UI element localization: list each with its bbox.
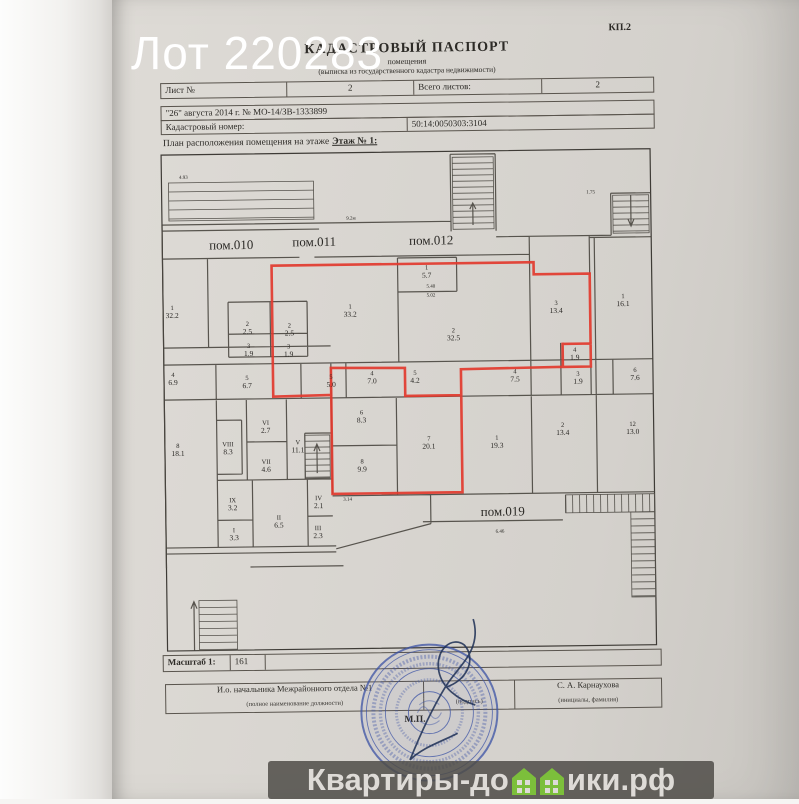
lot-outline-red [272,262,593,495]
house-icon [510,766,566,796]
svg-text:IX: IX [229,497,236,504]
svg-text:VI: VI [262,420,269,427]
svg-text:33.2: 33.2 [344,310,357,319]
scale-row: Масштаб 1: 161 [163,649,662,673]
svg-text:8.3: 8.3 [223,447,233,456]
svg-text:12: 12 [629,421,636,428]
svg-text:13.4: 13.4 [556,428,569,437]
room-labels: 132.2133.2232.515.7313.4116.122.522.531.… [165,262,642,543]
svg-text:2: 2 [288,322,291,329]
svg-text:11.1: 11.1 [291,445,304,454]
scale-empty-cell [265,650,661,670]
svg-text:6.5: 6.5 [274,521,284,530]
svg-text:5: 5 [329,374,332,381]
svg-text:III: III [315,525,322,532]
stamp-place-mark: М.П. [404,715,425,725]
sheet-row: Лист № 2 Всего листов: 2 [160,77,654,99]
svg-text:8.3: 8.3 [357,415,367,424]
svg-text:2: 2 [246,321,249,328]
svg-text:2: 2 [561,422,564,429]
svg-text:1.9: 1.9 [284,349,294,358]
svg-text:4.93: 4.93 [179,176,188,181]
svg-text:1: 1 [495,435,498,442]
sheet-label: Лист № [161,82,286,98]
svg-text:2.5: 2.5 [243,327,253,336]
plan-caption: План расположения помещения на этажеЭтаж… [163,136,377,149]
svg-text:3.3: 3.3 [229,533,239,542]
svg-text:4.6: 4.6 [261,465,271,474]
svg-text:1.9: 1.9 [570,353,580,362]
svg-text:2.1: 2.1 [314,501,324,510]
svg-text:8: 8 [176,443,179,450]
lot-number-overlay: Лот 220283 [131,26,383,80]
svg-text:V: V [295,439,300,446]
plan-caption-text: План расположения помещения на этаже [163,137,329,149]
svg-text:32.2: 32.2 [166,311,179,320]
svg-text:3: 3 [576,371,579,378]
official-name: С. А. Карнаухова [514,679,661,698]
svg-text:VIII: VIII [222,441,233,448]
svg-text:3.2: 3.2 [228,503,238,512]
svg-text:19.3: 19.3 [490,441,503,450]
cadastral-passport-document: КП.2 КАДАСТРОВЫЙ ПАСПОРТ помещения (выпи… [0,0,799,804]
total-sheets-label: Всего листов: [413,79,541,95]
svg-text:2.7: 2.7 [261,426,271,435]
watermark-prefix: Квартиры-до [307,762,509,798]
svg-text:3: 3 [247,343,250,350]
svg-text:2.3: 2.3 [313,531,323,540]
svg-text:пом.010: пом.010 [209,237,253,253]
floor-label: Этаж № 1: [332,136,377,147]
svg-text:5: 5 [245,375,248,382]
svg-text:5.40: 5.40 [426,285,435,290]
watermark-suffix: ики.рф [567,762,675,798]
svg-text:7.6: 7.6 [630,373,640,382]
name-hint: (инициалы, фамилия) [514,696,661,709]
svg-text:4.2: 4.2 [410,376,420,385]
svg-text:3.14: 3.14 [343,498,352,503]
svg-text:32.5: 32.5 [447,333,460,342]
premises-labels: пом.010пом.011пом.012пом.019 [209,231,525,522]
svg-text:4: 4 [171,372,175,379]
svg-text:7.0: 7.0 [367,376,377,385]
svg-text:13.4: 13.4 [550,306,563,315]
svg-text:7: 7 [427,436,431,443]
svg-text:1.9: 1.9 [573,377,583,386]
position-hint: (полное наименование должности) [166,699,423,713]
svg-text:6.9: 6.9 [168,378,178,387]
form-code: КП.2 [608,22,631,33]
watermark-bar: Квартиры-доики.рф [268,761,714,799]
svg-text:3: 3 [554,300,557,307]
svg-text:6: 6 [633,367,637,374]
dimension-labels: 4.939.2м1.755.405.023.146.46 [179,170,600,538]
svg-text:6: 6 [360,409,364,416]
svg-text:пом.019: пом.019 [481,503,525,519]
svg-text:16.1: 16.1 [616,299,629,308]
svg-text:II: II [277,515,281,522]
signature-cell [423,681,514,699]
total-sheets-value: 2 [541,78,653,93]
svg-text:1.9: 1.9 [244,349,254,358]
svg-text:VII: VII [262,459,271,466]
svg-text:5.02: 5.02 [427,294,436,299]
stair-hatches [168,155,656,651]
svg-text:IV: IV [315,495,322,502]
svg-text:7.5: 7.5 [510,374,520,383]
svg-text:1: 1 [621,293,624,300]
svg-text:8: 8 [360,458,363,465]
svg-text:4: 4 [513,368,517,375]
sheet-value: 2 [286,81,413,97]
svg-text:1: 1 [170,305,173,312]
signature-table: И.о. начальника Межрайонного отдела №1 С… [165,678,662,715]
svg-text:пом.012: пом.012 [409,232,453,248]
svg-text:2.5: 2.5 [285,328,295,337]
svg-text:18.1: 18.1 [171,449,184,458]
svg-text:4: 4 [573,347,577,354]
building-walls [161,152,656,651]
svg-text:6.7: 6.7 [242,381,252,390]
signature-hint: (подпись) [423,698,514,710]
svg-text:I: I [233,527,235,534]
svg-text:13.0: 13.0 [626,427,639,436]
cadastral-number-label: Кадастровый номер: [162,118,407,134]
svg-text:9.2м: 9.2м [346,217,356,222]
svg-text:2: 2 [452,327,455,334]
svg-text:пом.011: пом.011 [292,234,336,250]
svg-text:5.0: 5.0 [326,380,336,389]
svg-text:20.1: 20.1 [422,442,435,451]
svg-text:6.46: 6.46 [496,530,505,535]
svg-text:1.75: 1.75 [586,190,595,195]
scale-value: 161 [230,655,265,670]
scale-label: Масштаб 1: [164,655,230,671]
svg-text:3: 3 [287,343,290,350]
svg-text:4: 4 [370,370,374,377]
svg-text:5: 5 [413,370,416,377]
plan-frame [161,149,656,651]
svg-text:1: 1 [348,304,351,311]
cadastral-number-value: 50:14:0050303:3104 [407,115,654,131]
svg-text:5.7: 5.7 [422,271,432,280]
svg-text:1: 1 [425,265,428,272]
svg-text:9.9: 9.9 [357,464,367,473]
